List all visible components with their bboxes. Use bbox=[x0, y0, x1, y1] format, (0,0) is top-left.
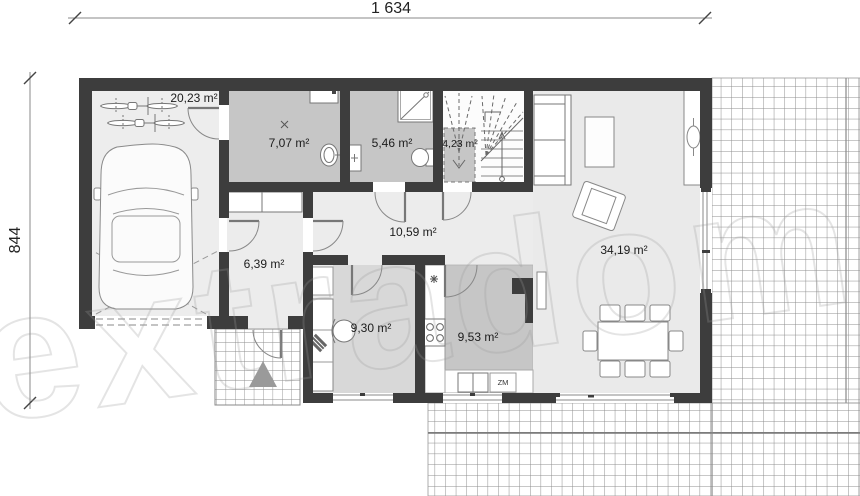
label-stair-void: 4,23 m² bbox=[442, 138, 478, 150]
floor-plan-canvas: extradom 1 634 844 20,23 m² 7,07 m² 5,46… bbox=[0, 0, 860, 496]
shower bbox=[398, 88, 433, 122]
label-kitchen: 9,53 m² bbox=[458, 330, 499, 344]
toilet bbox=[412, 149, 435, 167]
label-hall: 10,59 m² bbox=[389, 225, 436, 239]
label-garage: 20,23 m² bbox=[170, 91, 217, 105]
label-entry: 6,39 m² bbox=[244, 257, 285, 271]
label-bathroom: 5,46 m² bbox=[372, 136, 413, 150]
coffee-table bbox=[585, 117, 614, 167]
label-dishwasher: ZM bbox=[498, 378, 509, 387]
dim-depth-label: 844 bbox=[7, 227, 24, 254]
label-utility: 7,07 m² bbox=[269, 136, 310, 150]
label-office: 9,30 m² bbox=[351, 321, 392, 335]
label-living: 34,19 m² bbox=[600, 243, 647, 257]
terrace-bottom bbox=[428, 403, 860, 496]
wardrobe bbox=[223, 192, 302, 212]
dining-sliding-door bbox=[556, 393, 674, 403]
sofa bbox=[534, 95, 571, 185]
dim-width-label: 1 634 bbox=[371, 0, 411, 17]
